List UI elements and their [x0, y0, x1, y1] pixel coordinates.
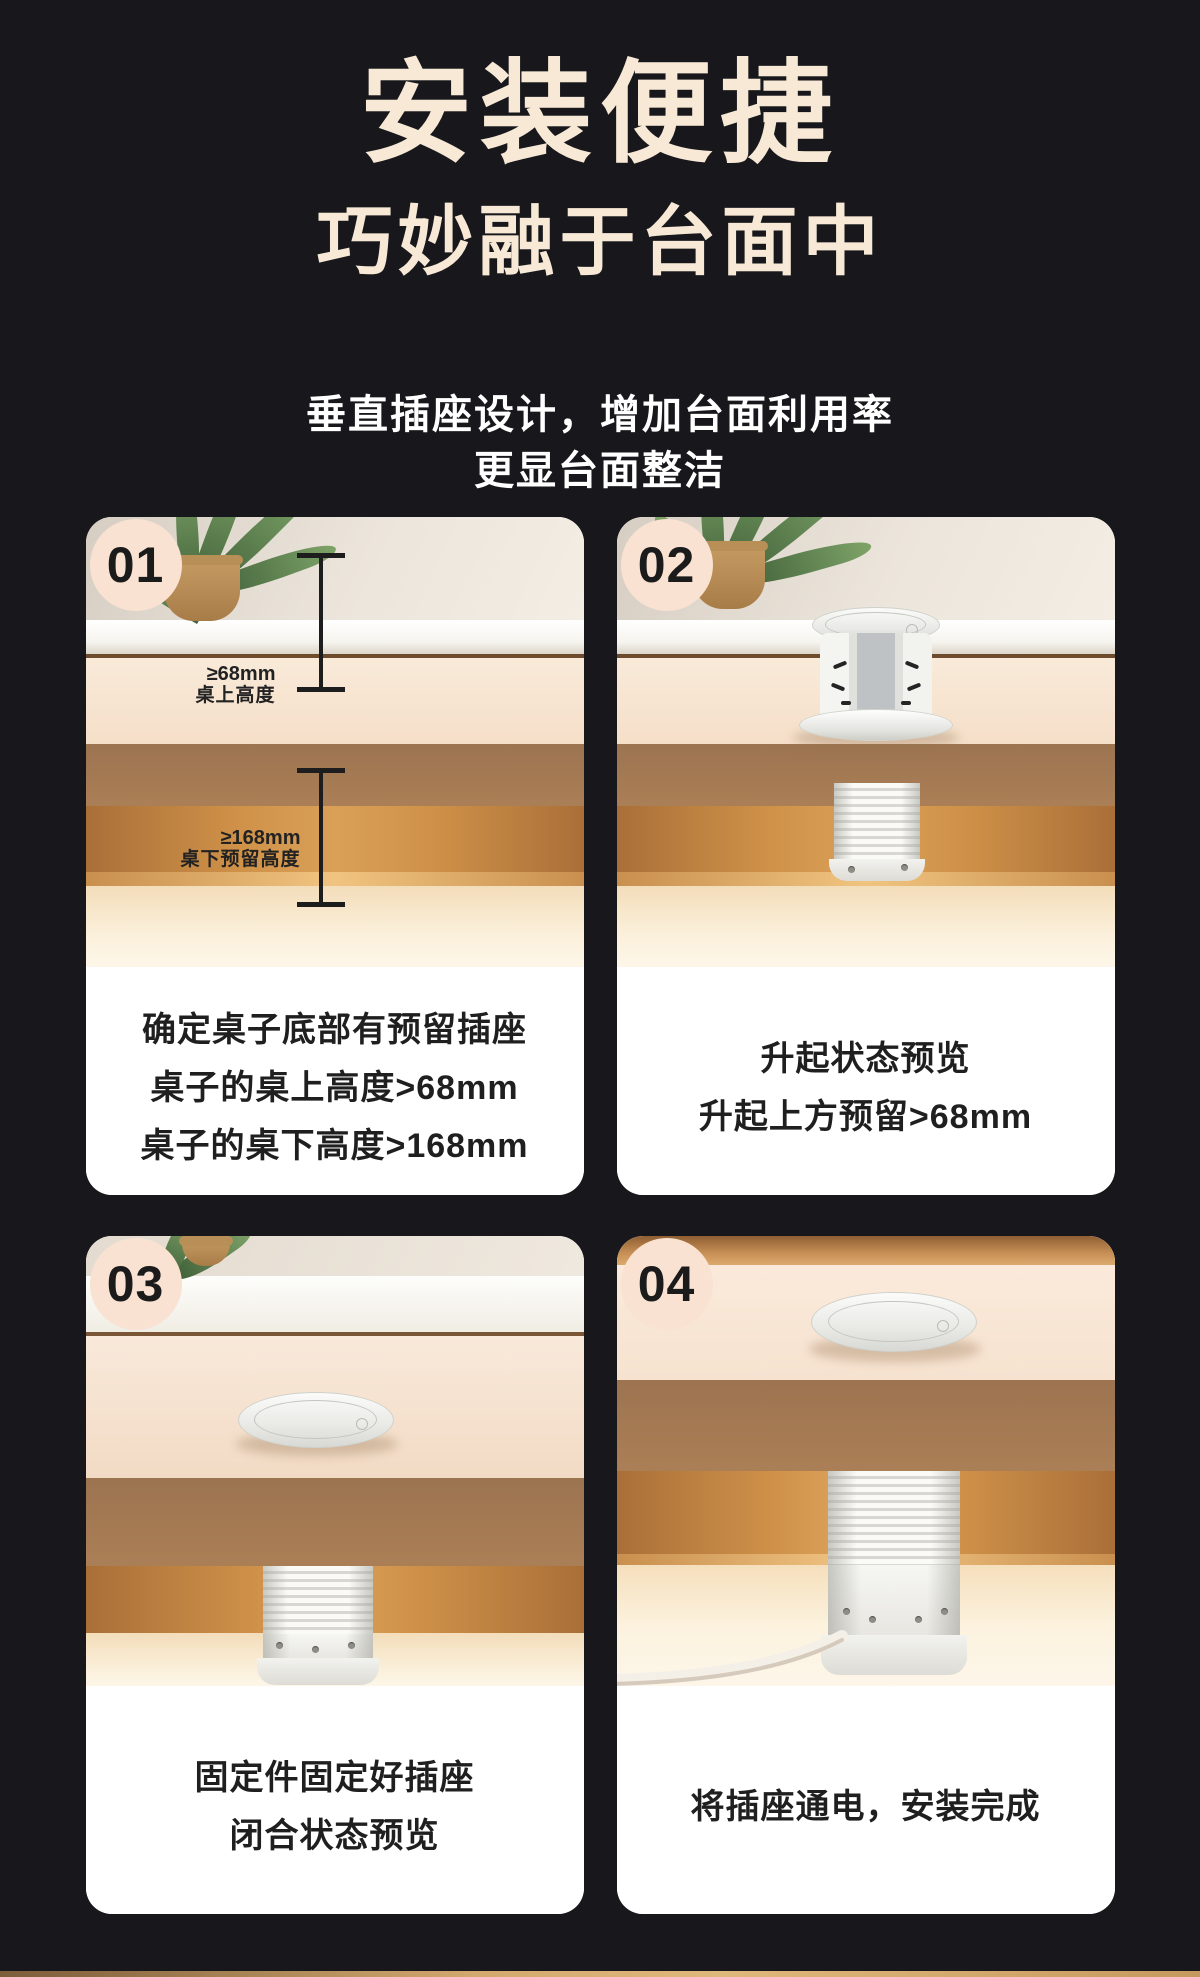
floor-glow	[617, 886, 1115, 967]
next-section-edge	[0, 1971, 1200, 1977]
caption-line: 将插座通电，安装完成	[691, 1778, 1041, 1836]
table-thickness	[86, 744, 584, 806]
caption-line: 闭合状态预览	[230, 1807, 440, 1865]
dimension-label: 桌下预留高度	[146, 849, 301, 871]
page-description-line1: 垂直插座设计，增加台面利用率	[0, 391, 1200, 439]
step-card-2: 02 升起状态预览 升起上方预留>68mm	[617, 517, 1115, 1195]
table-thickness	[86, 1478, 584, 1566]
step-number: 04	[638, 1255, 696, 1313]
step-1-photo: ≥68mm 桌上高度 ≥168mm 桌下预留高度 01	[86, 517, 584, 967]
step-card-3: 03 固定件固定好插座 闭合状态预览	[86, 1236, 584, 1914]
page-description-line2: 更显台面整洁	[0, 447, 1200, 495]
under-glow	[86, 872, 584, 886]
dimension-value: ≥68mm	[146, 663, 276, 685]
page-title: 安装便捷	[0, 0, 1200, 175]
step-1-caption: 确定桌子底部有预留插座 桌子的桌上高度>68mm 桌子的桌下高度>168mm	[86, 967, 584, 1195]
caption-line: 确定桌子底部有预留插座	[142, 1001, 527, 1059]
step-number-badge: 01	[90, 519, 182, 611]
step-2-caption: 升起状态预览 升起上方预留>68mm	[617, 967, 1115, 1195]
step-number: 02	[638, 536, 696, 594]
step-3-caption: 固定件固定好插座 闭合状态预览	[86, 1686, 584, 1914]
step-card-1: ≥68mm 桌上高度 ≥168mm 桌下预留高度 01	[86, 517, 584, 1195]
caption-line: 桌子的桌上高度>68mm	[150, 1059, 518, 1117]
step-4-photo: 04	[617, 1236, 1115, 1686]
caption-line: 升起状态预览	[761, 1030, 971, 1088]
page-subtitle: 巧妙融于台面中	[0, 201, 1200, 285]
step-number: 03	[107, 1255, 165, 1313]
dimension-value: ≥168mm	[146, 827, 301, 849]
step-3-photo: 03	[86, 1236, 584, 1686]
step-number-badge: 03	[90, 1238, 182, 1330]
floor-glow	[86, 886, 584, 967]
countertop-edge	[86, 620, 584, 654]
dimension-label: 桌上高度	[146, 685, 276, 707]
step-4-caption: 将插座通电，安装完成	[617, 1686, 1115, 1914]
step-number-badge: 04	[621, 1238, 713, 1330]
caption-line: 升起上方预留>68mm	[699, 1088, 1032, 1146]
product-install-page: 安装便捷 巧妙融于台面中 垂直插座设计，增加台面利用率 更显台面整洁	[0, 0, 1200, 1977]
step-card-4: 04 将插座通电，安装完成	[617, 1236, 1115, 1914]
step-number-badge: 02	[621, 519, 713, 611]
caption-line: 固定件固定好插座	[195, 1749, 475, 1807]
step-number: 01	[107, 536, 165, 594]
steps-grid: ≥68mm 桌上高度 ≥168mm 桌下预留高度 01	[0, 517, 1200, 1914]
caption-line: 桌子的桌下高度>168mm	[140, 1117, 528, 1175]
step-2-photo: 02	[617, 517, 1115, 967]
